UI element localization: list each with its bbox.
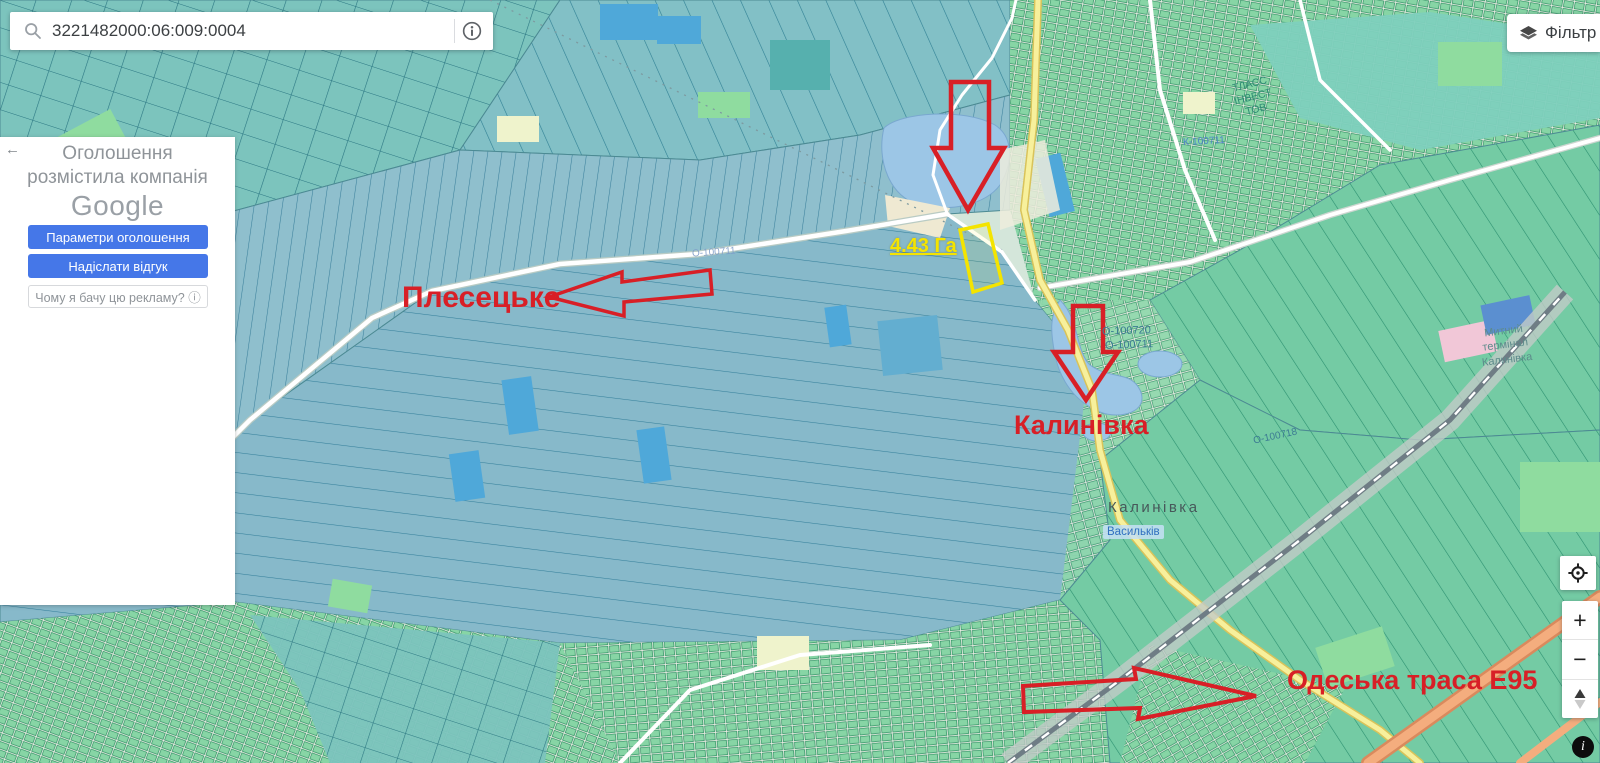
info-icon[interactable] (461, 20, 483, 42)
filter-button-label: Фільтр (1545, 23, 1596, 43)
ad-text-line2: розмістила компанія (0, 167, 235, 189)
filter-button[interactable]: Фільтр (1507, 14, 1600, 52)
ad-why-button[interactable]: Чому я бачу цю рекламу? ⓘ (28, 285, 208, 308)
ad-text-line1: Оголошення (0, 143, 235, 165)
map-canvas[interactable] (0, 0, 1600, 763)
ad-feedback-button[interactable]: Надіслати відгук (28, 254, 208, 278)
geolocate-icon (1567, 562, 1589, 584)
search-divider (454, 19, 455, 43)
compass-icon (1573, 688, 1587, 710)
search-input[interactable] (52, 21, 448, 41)
ad-panel: ← Оголошення розмістила компанія Google … (0, 137, 235, 605)
google-logo: Google (0, 190, 235, 222)
geolocate-button[interactable] (1560, 556, 1596, 590)
map-info-button[interactable]: i (1572, 736, 1594, 758)
ad-settings-button[interactable]: Параметри оголошення (28, 225, 208, 249)
zoom-in-button[interactable]: + (1562, 601, 1598, 639)
zoom-out-button[interactable]: − (1562, 639, 1598, 678)
layers-icon (1520, 26, 1537, 41)
search-icon (24, 22, 42, 40)
zoom-control: + − (1562, 601, 1598, 718)
search-bar (10, 12, 493, 50)
compass-button[interactable] (1562, 679, 1598, 718)
